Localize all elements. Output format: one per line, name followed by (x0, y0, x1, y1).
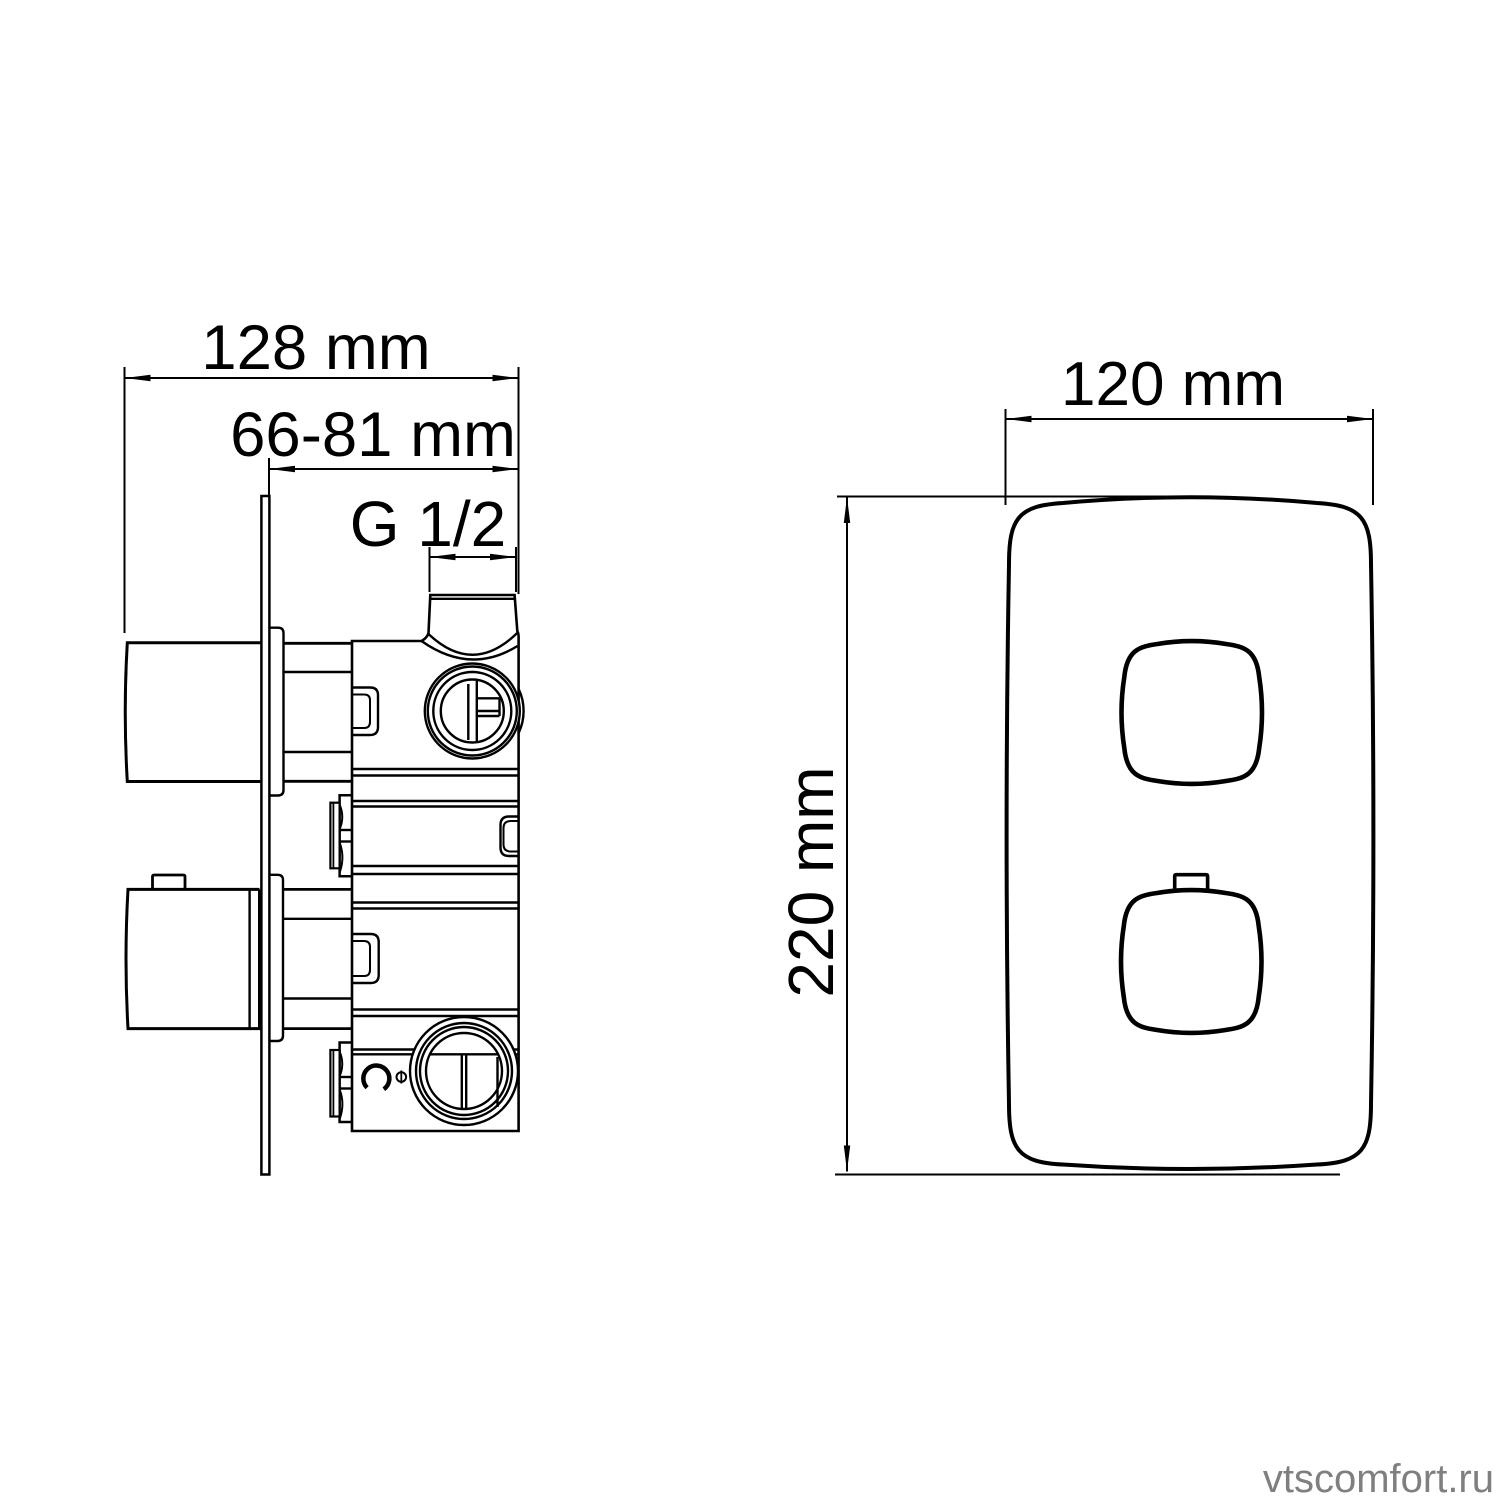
svg-text:120 mm: 120 mm (1061, 350, 1285, 419)
svg-text:vtscomfort.ru: vtscomfort.ru (1263, 1457, 1494, 1500)
svg-text:128 mm: 128 mm (201, 313, 430, 383)
svg-text:220 mm: 220 mm (775, 766, 847, 997)
svg-text:G 1/2: G 1/2 (350, 488, 507, 560)
svg-text:66-81 mm: 66-81 mm (230, 400, 516, 470)
